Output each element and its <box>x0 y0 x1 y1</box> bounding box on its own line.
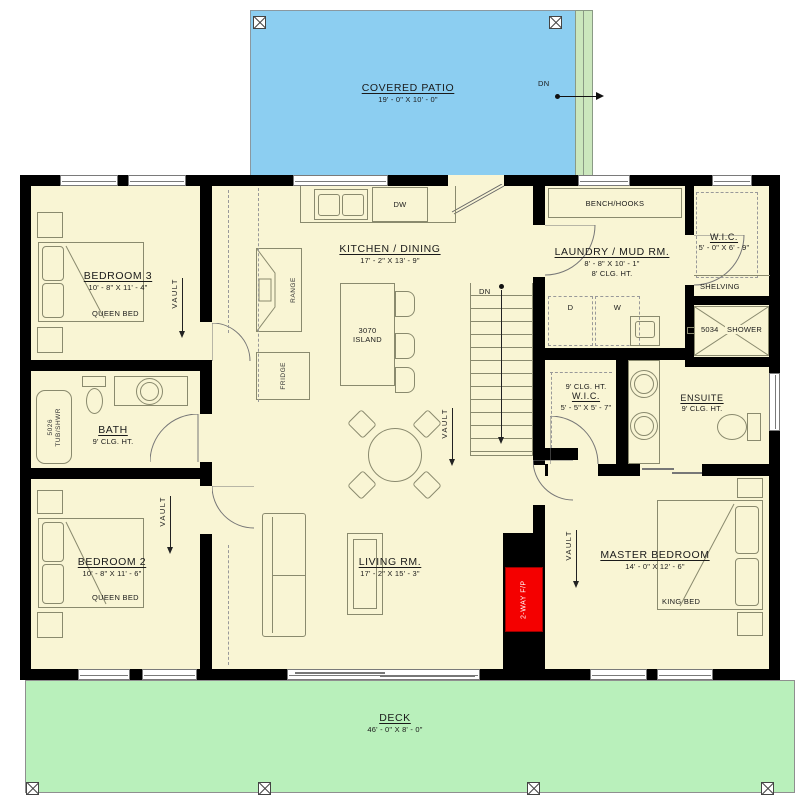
dishwasher-label: DW <box>393 200 406 209</box>
room-dims: 19' - 0" X 10' - 0" <box>333 95 483 104</box>
shower: 5034 SHOWER <box>694 306 769 356</box>
room-label-covered-patio: COVERED PATIO 19' - 0" X 10' - 0" <box>333 82 483 105</box>
deck-post <box>761 782 774 795</box>
fridge: FRIDGE <box>256 352 310 400</box>
range-label: RANGE <box>290 277 297 303</box>
wall <box>20 468 212 479</box>
toilet-tank <box>747 413 761 441</box>
floor-plan: COVERED PATIO 19' - 0" X 10' - 0" DN DEC… <box>0 0 800 811</box>
room-dims: 5' - 0" X 6' - 9" <box>674 243 774 252</box>
nightstand <box>737 612 763 636</box>
nightstand <box>737 478 763 498</box>
sliding-door-panel <box>295 672 385 674</box>
bench: BENCH/HOOKS <box>548 188 682 218</box>
patio-dn-arrowhead <box>596 92 608 100</box>
ensuite-sink-inner <box>634 416 654 436</box>
pillow <box>735 506 759 554</box>
patio-post <box>549 16 562 29</box>
room-name: BATH <box>38 424 188 437</box>
shower-model: 5034 <box>699 325 721 334</box>
room-dims: 5' - 5" X 5' - 7" <box>536 403 636 412</box>
deck-post <box>26 782 39 795</box>
patio-door-leaf <box>448 184 508 218</box>
range: RANGE <box>256 248 302 332</box>
wall <box>685 296 780 305</box>
island-stool <box>395 291 415 317</box>
pillow <box>735 558 759 606</box>
toilet-tank <box>82 376 106 387</box>
vault-arrow: VAULT <box>170 278 183 334</box>
wall <box>685 357 780 367</box>
vault-stem <box>576 530 577 584</box>
window <box>712 175 752 186</box>
dishwasher: DW <box>372 187 428 222</box>
vault-label: VAULT <box>158 496 167 527</box>
vault-arrow: VAULT <box>440 408 453 462</box>
room-name: COVERED PATIO <box>333 82 483 95</box>
bed-size-label: QUEEN BED <box>92 593 139 602</box>
vault-stem <box>182 278 183 334</box>
fridge-label: FRIDGE <box>280 362 287 390</box>
nightstand <box>37 212 63 238</box>
toilet-bowl <box>86 388 103 414</box>
bath-sink-inner <box>140 382 159 401</box>
room-dims: 14' - 0" X 12' - 6" <box>580 562 730 571</box>
room-name: LAUNDRY / MUD RM. <box>537 246 687 259</box>
kitchen-island: 3070 ISLAND <box>340 283 395 386</box>
shelving-edge <box>694 275 770 276</box>
bench-label: BENCH/HOOKS <box>586 199 645 208</box>
door-arc-wic-master <box>550 416 599 465</box>
window <box>769 373 780 431</box>
laundry-sink-bowl <box>635 321 655 338</box>
room-label-master: MASTER BEDROOM 14' - 0" X 12' - 6" <box>580 549 730 572</box>
stairs-dn-dot <box>499 284 504 289</box>
stairs-dn-arrow <box>501 290 502 440</box>
window <box>142 669 197 680</box>
wall <box>20 360 212 371</box>
dining-table <box>368 428 422 482</box>
window <box>128 175 186 186</box>
room-dims: 17' - 2" X 15' - 3" <box>315 569 465 578</box>
room-label-ensuite: ENSUITE 9' CLG. HT. <box>652 393 752 414</box>
room-ceiling: 9' CLG. HT. <box>652 404 752 413</box>
vault-arrow: VAULT <box>564 530 577 584</box>
deck-post <box>258 782 271 795</box>
ensuite-sink-inner <box>634 374 654 394</box>
window <box>590 669 647 680</box>
window <box>293 175 388 186</box>
deck-post <box>527 782 540 795</box>
room-name: W.I.C. <box>674 232 774 243</box>
stairs-dn-label: DN <box>479 287 490 296</box>
room-name: DECK <box>320 712 470 725</box>
room-name: LIVING RM. <box>315 556 465 569</box>
island-model: 3070 <box>359 326 377 335</box>
wall <box>533 175 545 465</box>
vault-stem <box>452 408 453 462</box>
fireplace-label: 2-WAY F/P <box>506 568 542 631</box>
room-dims: 46' - 0" X 8' - 0" <box>320 725 470 734</box>
closet-line <box>228 545 229 665</box>
island-label: ISLAND <box>353 335 382 344</box>
patio-post <box>253 16 266 29</box>
room-ceiling: 8' CLG. HT. <box>537 269 687 278</box>
vault-stem <box>170 496 171 550</box>
fireplace: 2-WAY F/P <box>505 567 543 632</box>
sink-bowl <box>342 194 364 216</box>
door-opening <box>200 414 212 462</box>
deck-area <box>25 680 795 793</box>
window <box>578 175 630 186</box>
wall <box>616 348 628 476</box>
dryer: D <box>548 296 593 346</box>
dryer-label: D <box>568 303 574 312</box>
pocket-door-panel <box>642 468 674 470</box>
toilet-bowl <box>717 414 747 440</box>
nightstand <box>37 327 63 353</box>
room-label-living: LIVING RM. 17' - 2" X 15' - 3" <box>315 556 465 579</box>
room-dims: 8' - 8" X 10' - 1" <box>537 259 687 268</box>
vault-label: VAULT <box>440 408 449 439</box>
vault-arrow: VAULT <box>158 496 171 550</box>
shower-label: 5034 SHOWER <box>695 318 768 338</box>
island-stool <box>395 367 415 393</box>
room-label-laundry: LAUNDRY / MUD RM. 8' - 8" X 10' - 1" 8' … <box>537 246 687 278</box>
wall <box>545 348 685 360</box>
door-opening <box>200 322 212 360</box>
window <box>657 669 713 680</box>
bed-size-label: KING BED <box>662 597 700 606</box>
patio-dn-label: DN <box>538 79 549 88</box>
bed-size-label: QUEEN BED <box>92 309 139 318</box>
patio-steps <box>575 10 593 178</box>
room-label-bedroom2: BEDROOM 2 10' - 8" X 11' - 6" <box>37 556 187 579</box>
island-stool <box>395 333 415 359</box>
room-label-bath: BATH 9' CLG. HT. <box>38 424 188 447</box>
room-name: MASTER BEDROOM <box>580 549 730 562</box>
room-name: W.I.C. <box>536 391 636 402</box>
door-arc-master <box>533 460 574 501</box>
door-opening <box>640 464 702 476</box>
vault-label: VAULT <box>564 530 573 561</box>
ceiling-break-line <box>258 188 259 402</box>
nightstand <box>37 612 63 638</box>
door-arc-bedroom2 <box>212 486 255 529</box>
room-label-deck: DECK 46' - 0" X 8' - 0" <box>320 712 470 735</box>
wall <box>533 505 545 533</box>
room-label-kitchen: KITCHEN / DINING 17' - 2" X 13' - 9" <box>315 243 465 266</box>
shower-type: SHOWER <box>725 325 764 334</box>
room-label-wic-hall: W.I.C. 5' - 0" X 6' - 9" <box>674 232 774 253</box>
counter-edge <box>300 186 301 222</box>
wic-shelf-lines <box>550 372 612 373</box>
sink-bowl <box>318 194 340 216</box>
sliding-door-panel <box>380 675 475 677</box>
room-dims: 10' - 8" X 11' - 6" <box>37 569 187 578</box>
room-name: KITCHEN / DINING <box>315 243 465 256</box>
window <box>78 669 130 680</box>
closet-line <box>228 190 229 333</box>
door-arc-bedroom3 <box>212 323 251 362</box>
counter-edge <box>300 222 456 223</box>
shower-valve <box>687 327 695 334</box>
sofa-cushion-line <box>273 575 305 576</box>
patio-steps-line <box>583 11 584 177</box>
room-name: ENSUITE <box>652 393 752 404</box>
room-dims: 17' - 2" X 13' - 9" <box>315 256 465 265</box>
shelving-label: SHELVING <box>700 282 740 291</box>
pocket-door-panel <box>672 472 702 474</box>
door-opening <box>200 486 212 534</box>
room-name: BEDROOM 2 <box>37 556 187 569</box>
patio-dn-line <box>559 96 597 97</box>
room-ceiling: 9' CLG. HT. <box>38 437 188 446</box>
window <box>60 175 118 186</box>
vault-label: VAULT <box>170 278 179 309</box>
room-ceiling: 9' CLG. HT. <box>536 382 636 391</box>
counter-edge <box>455 186 456 222</box>
wall <box>20 175 31 680</box>
washer-label: W <box>614 303 621 312</box>
nightstand <box>37 490 63 514</box>
room-label-wic-master: 9' CLG. HT. W.I.C. 5' - 5" X 5' - 7" <box>536 382 636 412</box>
